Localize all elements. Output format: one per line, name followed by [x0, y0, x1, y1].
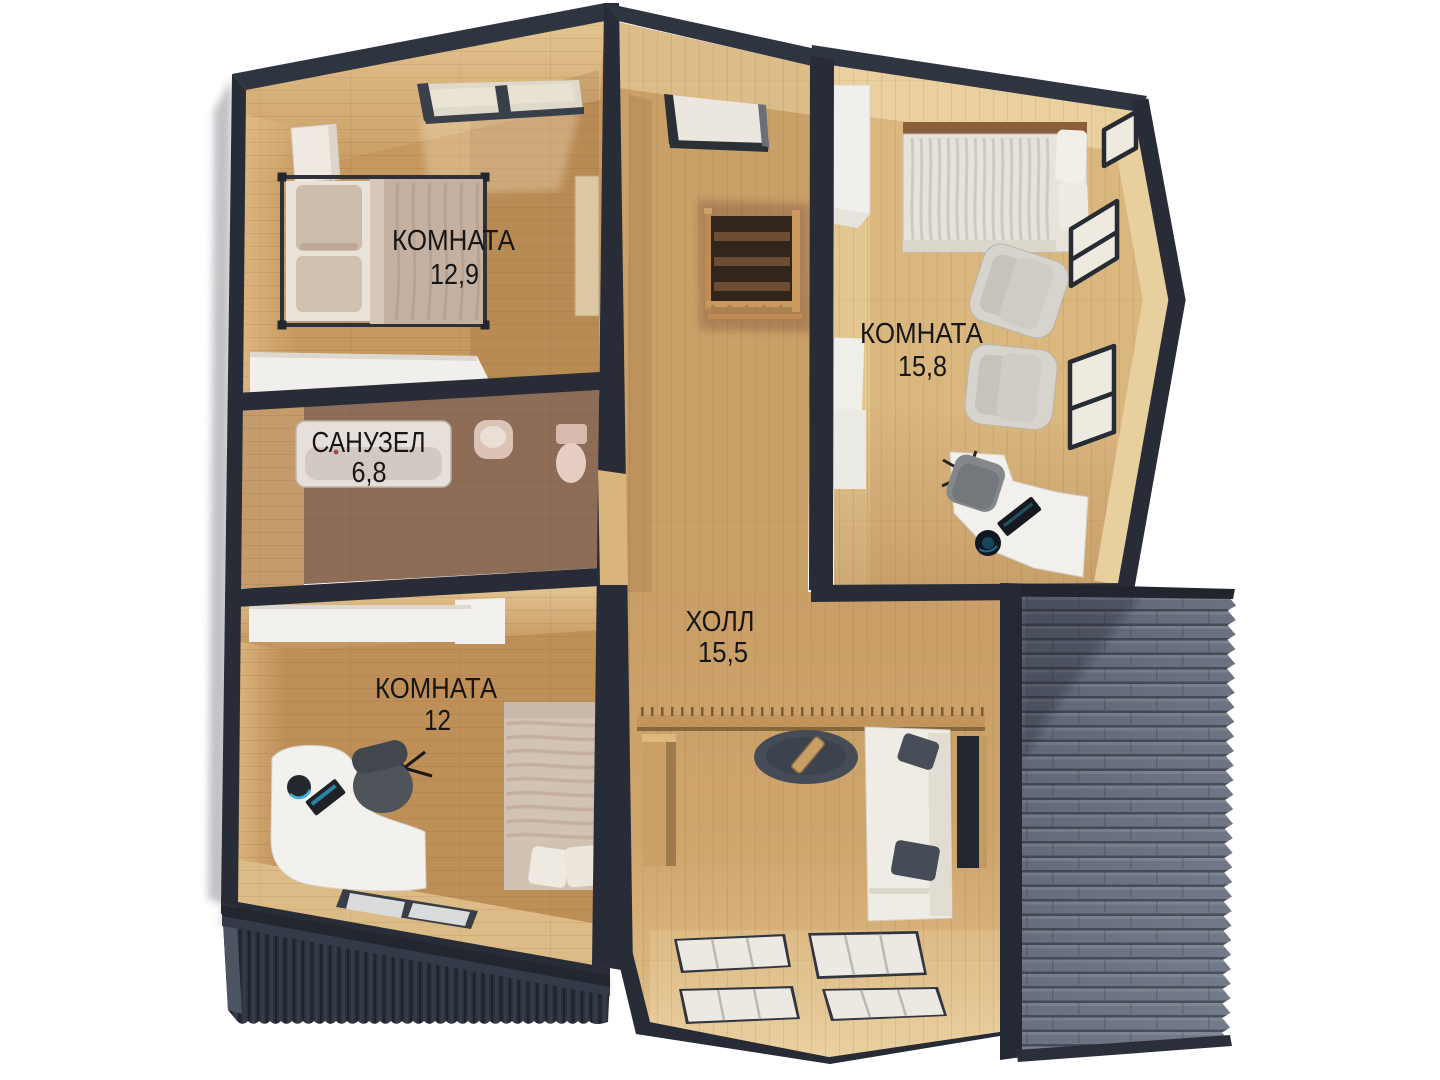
svg-text:6,8: 6,8 — [352, 457, 387, 489]
svg-text:КОМНАТА: КОМНАТА — [860, 318, 984, 350]
svg-text:ХОЛЛ: ХОЛЛ — [686, 606, 755, 638]
svg-text:КОМНАТА: КОМНАТА — [392, 225, 516, 257]
svg-text:САНУЗЕЛ: САНУЗЕЛ — [312, 427, 426, 459]
svg-text:15,8: 15,8 — [898, 351, 947, 383]
svg-text:15,5: 15,5 — [698, 637, 748, 669]
svg-text:12: 12 — [424, 705, 451, 737]
svg-text:12,9: 12,9 — [430, 259, 479, 291]
svg-text:КОМНАТА: КОМНАТА — [375, 673, 498, 705]
